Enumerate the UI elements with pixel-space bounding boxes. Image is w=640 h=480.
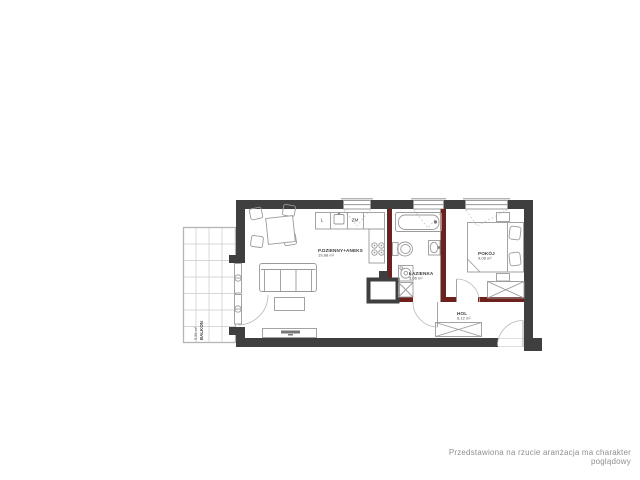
hall-wardrobe [436, 323, 482, 337]
room-label-living: P.DZIENNY+ANEKS 19,88 m² [318, 248, 363, 259]
sofa [260, 264, 317, 292]
pillow [509, 252, 522, 266]
room-label-bedroom: POKÓJ 9,08 m² [478, 251, 495, 262]
bathtub [396, 213, 442, 232]
kitchen-sink [334, 215, 344, 225]
coffee-table [275, 298, 305, 311]
nightstand [497, 274, 510, 282]
tv-stand [263, 329, 317, 338]
floor-plan-page: P.DZIENNY+ANEKS 19,88 m² ŁAZIENKA 3,06 m… [0, 0, 640, 480]
bed [468, 223, 524, 273]
bathroom-shaft-box [399, 283, 414, 298]
room-label-balcony: 5,56 m² BALKON [194, 321, 204, 340]
room-area: 19,88 m² [318, 254, 363, 259]
balcony-door [235, 264, 269, 326]
room-area: 6,12 m² [457, 317, 471, 322]
chair [250, 235, 263, 248]
installation-shaft [369, 271, 398, 302]
balcony [184, 228, 236, 343]
kitchen-faucet [338, 212, 340, 214]
floor-plan-drawing [0, 0, 640, 480]
fridge-label: L [321, 218, 324, 224]
room-label-bathroom: ŁAZIENKA 3,06 m² [409, 271, 433, 282]
bathroom-door [413, 302, 438, 327]
toilet [393, 242, 413, 256]
pillow [509, 226, 522, 240]
dishwasher-label: ZM [352, 218, 359, 224]
entrance-door [498, 321, 525, 347]
room-label-hall: HOL 6,12 m² [457, 311, 471, 322]
bathroom-sink [429, 241, 441, 256]
nightstand [497, 213, 510, 222]
bedroom-door [457, 279, 480, 302]
room-area: 3,06 m² [409, 277, 433, 282]
dining-table [266, 216, 296, 245]
room-name: BALKON [199, 321, 205, 340]
bedroom-wardrobe [488, 282, 525, 299]
disclaimer-text: Przedstawiona na rzucie aranżacja ma cha… [416, 448, 631, 466]
dining-set [249, 204, 297, 248]
tv [281, 331, 300, 334]
stove [372, 243, 384, 255]
room-area: 9,08 m² [478, 257, 495, 262]
